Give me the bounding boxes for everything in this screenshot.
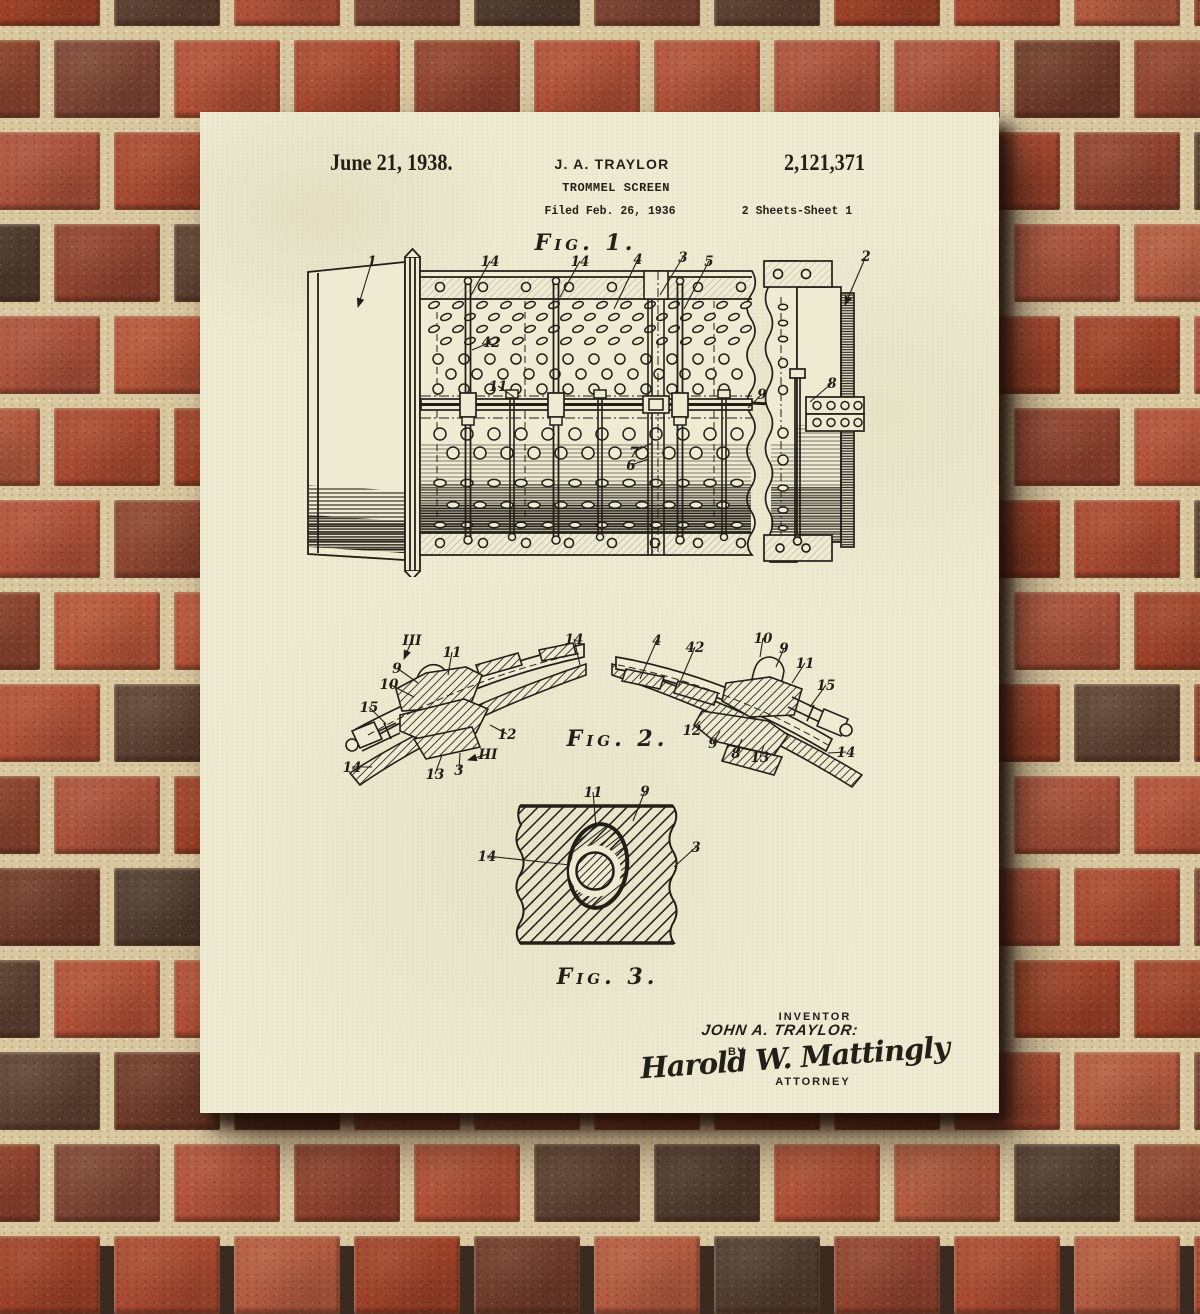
brick [834,1236,940,1314]
brick [0,960,40,1038]
filed-date: Filed Feb. 26, 1936 [510,205,710,218]
feed-chute [308,262,405,560]
ref-label: 12 [498,727,517,743]
fig1-drawing: 11414435242119876 [300,247,890,577]
ref-label: 5 [704,254,713,270]
brick [1194,316,1200,394]
brick [354,0,460,26]
ref-label: 42 [482,335,501,351]
ref-label: 42 [686,640,705,656]
ref-label: 11 [584,785,603,801]
brick [1074,684,1180,762]
ref-label: 2 [860,249,870,265]
brick [1134,408,1200,486]
brick [1194,868,1200,946]
ref-label: 13 [426,767,445,783]
end-flange [405,249,420,577]
brick [1074,0,1180,26]
fig2-left-assembly [346,643,586,785]
ref-label: 11 [796,656,815,672]
brick [1014,40,1120,118]
brick [654,1144,760,1222]
brick [1074,132,1180,210]
brick [414,1144,520,1222]
brick [54,408,160,486]
ref-label: 1 [367,254,376,270]
brick [1074,1052,1180,1130]
brick [1134,592,1200,670]
brick [1194,1052,1200,1130]
brick [0,684,100,762]
right-end-section [764,261,864,562]
brick [54,776,160,854]
brick [1074,500,1180,578]
ref-label: 9 [392,661,402,677]
brick [1194,1236,1200,1314]
brick [1014,224,1120,302]
ref-label: 11 [489,379,508,395]
brick [774,40,880,118]
ref-label: 6 [626,458,636,474]
brick [594,0,700,26]
ref-label: 3 [691,840,700,856]
patent-date: June 21, 1938. [330,150,453,176]
brick [1134,776,1200,854]
ref-label: 15 [817,678,836,694]
ref-label: 13 [751,750,770,766]
brick [894,1144,1000,1222]
ref-label: 14 [837,745,856,761]
brick [474,0,580,26]
brick [1074,1236,1180,1314]
brick [894,40,1000,118]
brick [954,1236,1060,1314]
brick [1194,0,1200,26]
brick [0,224,40,302]
brick [1194,132,1200,210]
fig2-caption: Fig. 2. [530,726,705,752]
brick [654,40,760,118]
ref-label: 14 [481,254,500,270]
ref-label: 14 [478,849,497,865]
ref-label: 8 [827,376,837,392]
brick [1074,316,1180,394]
brick [834,0,940,26]
brick [174,1144,280,1222]
brick [294,40,400,118]
brick [234,1236,340,1314]
ref-label: 3 [454,763,463,779]
ref-label: 3 [678,250,687,266]
brick [0,132,100,210]
brick [534,40,640,118]
brick [474,1236,580,1314]
brick [594,1236,700,1314]
ref-label: 14 [343,760,362,776]
rod-section [577,853,614,890]
ref-label: 9 [757,387,767,403]
brick [354,1236,460,1314]
ref-label: III [478,747,499,763]
brick [0,1144,40,1222]
brick [954,0,1060,26]
sheet-info: 2 Sheets-Sheet 1 [697,205,897,218]
ref-label: 4 [633,252,642,268]
brick [234,0,340,26]
brick [54,224,160,302]
brick [714,1236,820,1314]
brick [534,1144,640,1222]
brick [54,40,160,118]
brick [1014,776,1120,854]
brick [0,408,40,486]
attorney-heading: ATTORNEY [713,1076,913,1088]
patent-number: 2,121,371 [707,150,865,176]
brick [0,1236,100,1314]
brick [1134,960,1200,1038]
brick [1074,868,1180,946]
brick [774,1144,880,1222]
ref-label: III [402,633,423,649]
patent-poster: June 21, 1938. J. A. TRAYLOR 2,121,371 T… [200,112,999,1113]
brick [0,316,100,394]
brick [0,1052,100,1130]
brick [0,592,40,670]
ref-label: 14 [571,254,590,270]
ref-label: 9 [640,785,650,800]
ref-label: 9 [779,641,789,657]
brick [0,868,100,946]
brick [0,500,100,578]
brick [114,0,220,26]
brick [0,40,40,118]
brick [114,1236,220,1314]
brick [1134,1144,1200,1222]
brick [1134,224,1200,302]
fig2-drawing: III119101514133III1214442109111512981314 [330,627,875,797]
brick [1014,960,1120,1038]
ref-label: 14 [565,632,584,648]
brick [1014,408,1120,486]
brick [1194,500,1200,578]
ref-label: 9 [708,736,718,752]
brick [0,0,100,26]
brick [1194,684,1200,762]
brick [54,592,160,670]
ref-label: 10 [380,677,399,693]
ref-label: 8 [731,746,741,762]
fig3-caption: Fig. 3. [520,964,695,990]
brick [0,776,40,854]
ref-label: 15 [360,700,379,716]
inventor-name-header: J. A. TRAYLOR [512,156,712,172]
ref-label: 4 [652,633,661,649]
brick [1134,40,1200,118]
ref-label: 11 [443,645,462,661]
brick [414,40,520,118]
brick [1014,592,1120,670]
ref-label: 10 [754,631,773,647]
brick [714,0,820,26]
brick [1014,1144,1120,1222]
brick [54,960,160,1038]
patent-title: TROMMEL SCREEN [516,181,716,195]
brick [174,40,280,118]
brick [54,1144,160,1222]
fig2-right-assembly [612,657,862,787]
brick [294,1144,400,1222]
